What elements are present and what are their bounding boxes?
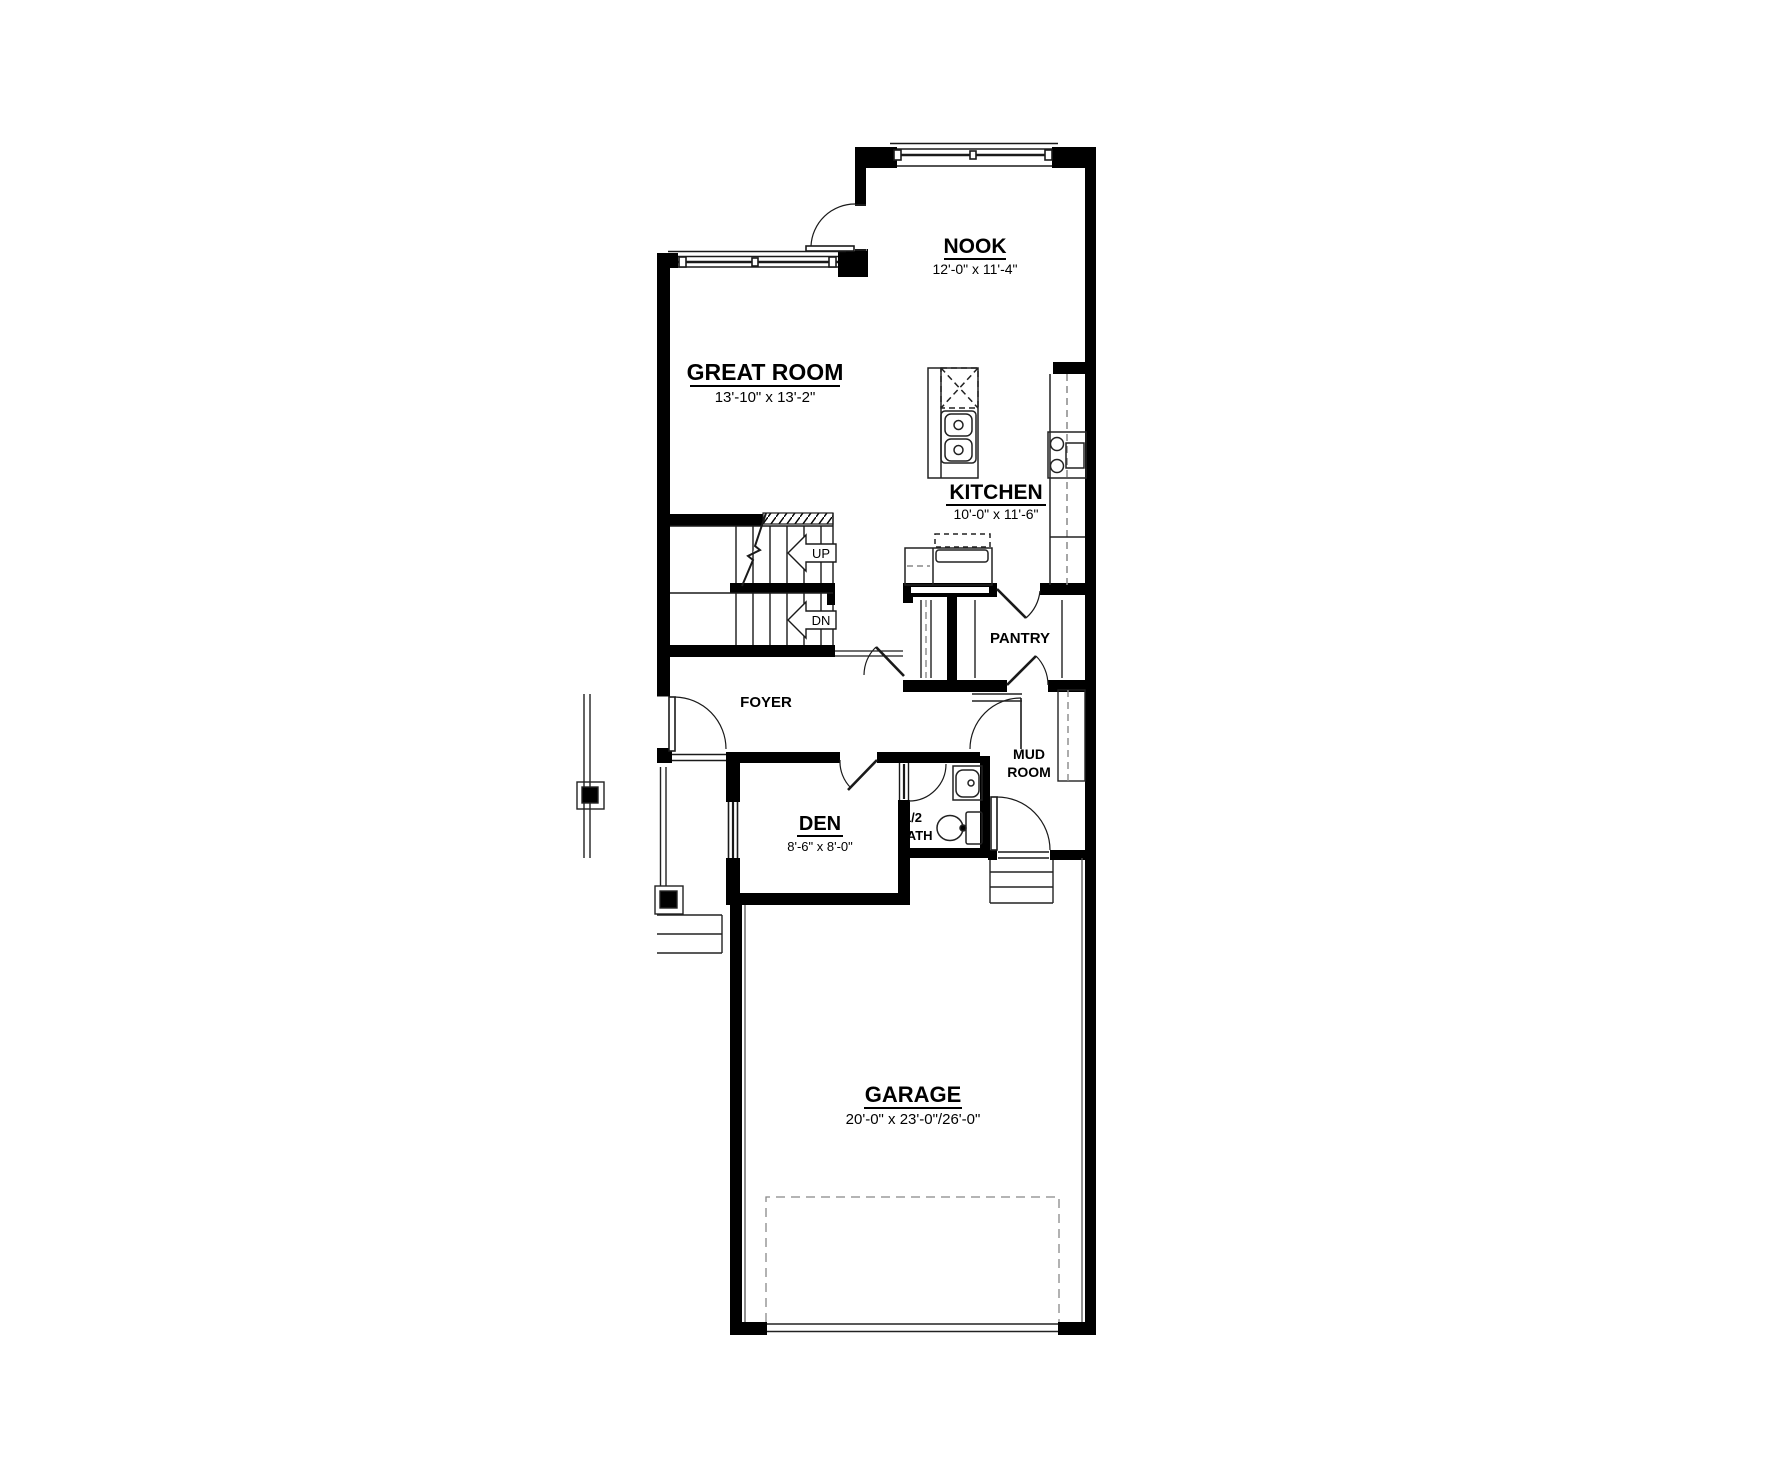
wall-mudroom-bottom-cap: [988, 850, 997, 860]
half-bath-line1: 1/2: [904, 810, 922, 825]
wall-nook-top-left-block: [855, 147, 897, 168]
label-den: DEN 8'-6" x 8'-0": [787, 813, 853, 854]
wall-mudroom-bottom-right: [1050, 850, 1096, 860]
den-dims: 8'-6" x 8'-0": [787, 839, 853, 854]
wall-right-exterior: [1085, 147, 1096, 1335]
nook-dims: 12'-0" x 11'-4": [932, 261, 1017, 277]
wall-stairs-mid-nib: [827, 583, 835, 605]
window-mullion: [1045, 150, 1052, 160]
wall-garage-left: [730, 893, 742, 1335]
toilet: [937, 812, 982, 844]
door-leaf: [1007, 656, 1036, 685]
great-room-title: GREAT ROOM: [687, 359, 844, 385]
kitchen-dims: 10'-0" x 11'-6": [953, 506, 1038, 522]
mud-room-line2: ROOM: [1007, 764, 1051, 780]
floor-plan-drawing: NOOK 12'-0" x 11'-4" GREAT ROOM 13'-10" …: [0, 0, 1780, 1480]
door-leaf: [669, 697, 675, 751]
door-swing-arc: [909, 764, 946, 801]
window-mullion: [894, 150, 901, 160]
porch-post-core: [660, 891, 677, 908]
label-kitchen: KITCHEN 10'-0" x 11'-6": [946, 481, 1046, 522]
window-mullion: [970, 151, 976, 159]
door-leaf: [991, 797, 997, 850]
wall-stairs-bottom: [665, 645, 835, 657]
garage-steps: [990, 860, 1053, 903]
walls: [657, 147, 1096, 1335]
door-swing-arc: [1026, 591, 1040, 618]
wall-bath-top: [877, 752, 980, 763]
door-swing-arc: [811, 204, 855, 246]
porch-steps: [657, 915, 722, 953]
wall-mudroom-top: [903, 680, 1007, 692]
cooktop-front: [936, 550, 988, 562]
door-swing-arc: [1036, 656, 1048, 685]
window-mullion: [679, 257, 686, 267]
garage-entry-door: [991, 797, 1050, 858]
label-garage: GARAGE 20'-0" x 23'-0"/26'-0": [846, 1082, 981, 1128]
half-bath-line2: BATH: [897, 828, 932, 843]
mud-room-line1: MUD: [1013, 746, 1045, 762]
nook-patio-door: [806, 204, 867, 251]
foyer-title: FOYER: [740, 694, 792, 711]
wall-garage-bottom-right-block: [1058, 1322, 1096, 1335]
pantry-title: PANTRY: [990, 630, 1050, 647]
label-nook: NOOK 12'-0" x 11'-4": [932, 235, 1017, 277]
wall-stairs-mid: [730, 583, 835, 593]
kitchen-right-counter: [1048, 374, 1086, 585]
kitchen-bottom-counter: [905, 534, 992, 585]
half-bath-door: [900, 763, 947, 801]
door-swing-arc: [997, 797, 1050, 850]
wall-stairs-top: [668, 514, 763, 526]
label-great-room: GREAT ROOM 13'-10" x 13'-2": [687, 359, 844, 406]
kitchen-fixtures: [905, 368, 1086, 585]
door-leaf: [806, 246, 854, 251]
door-leaf: [848, 760, 877, 790]
door-swing-arc: [970, 698, 1021, 749]
front-entry-door: [655, 693, 726, 752]
den-title: DEN: [799, 813, 841, 835]
porch-post-outer-core: [582, 787, 598, 803]
wall-den-left-upper: [726, 763, 740, 800]
garage-dims: 20'-0" x 23'-0"/26'-0": [846, 1111, 981, 1128]
wall-nook-greatroom-corner: [838, 249, 868, 277]
garage-door-dashed-outline: [766, 1197, 1059, 1322]
wall-garage-bottom-left-block: [730, 1322, 767, 1335]
island-flush-counter: [941, 368, 978, 408]
mudroom-closet-door: [970, 698, 1021, 749]
label-mud-room: MUD ROOM: [1007, 746, 1051, 780]
wall-nook-left-upper: [855, 166, 866, 207]
kitchen-peninsula-core: [911, 587, 989, 593]
mudroom-bench: [1058, 690, 1085, 781]
front-porch: [577, 694, 722, 953]
den-window-cap-bottom: [726, 858, 740, 863]
den-door: [840, 760, 877, 790]
pantry-door-kitchen: [997, 589, 1040, 618]
den-window-cap-top: [726, 797, 740, 802]
wall-pantry-top-right: [1040, 583, 1096, 595]
stairs-up-label: UP: [812, 546, 830, 561]
nook-title: NOOK: [944, 235, 1007, 258]
kitchen-sink: [941, 411, 976, 463]
window-mullion: [829, 257, 836, 267]
wall-pantry-left: [947, 597, 957, 687]
kitchen-title: KITCHEN: [949, 481, 1042, 504]
wall-left-exterior: [657, 253, 670, 695]
kitchen-island: [928, 368, 978, 478]
pantry-door-mudroom: [1007, 656, 1048, 685]
wall-nook-kitchen-stub: [1053, 362, 1096, 374]
hood-dashed: [935, 534, 990, 547]
wall-den-bottom: [726, 893, 910, 905]
garage-title: GARAGE: [865, 1082, 962, 1107]
floor-plan-page: NOOK 12'-0" x 11'-4" GREAT ROOM 13'-10" …: [0, 0, 1780, 1480]
door-swing-arc: [840, 760, 851, 788]
window-mullion: [752, 258, 758, 266]
door-leaf: [997, 589, 1026, 618]
great-room-dims: 13'-10" x 13'-2": [715, 389, 816, 406]
wall-bath-bottom: [898, 848, 990, 858]
stairs-down-label: DN: [812, 613, 831, 628]
stairs-hatch-strip: [763, 513, 833, 524]
wall-foyer-bottom: [726, 752, 840, 763]
door-swing-arc: [675, 697, 726, 749]
bath-vanity-sink: [953, 766, 982, 800]
